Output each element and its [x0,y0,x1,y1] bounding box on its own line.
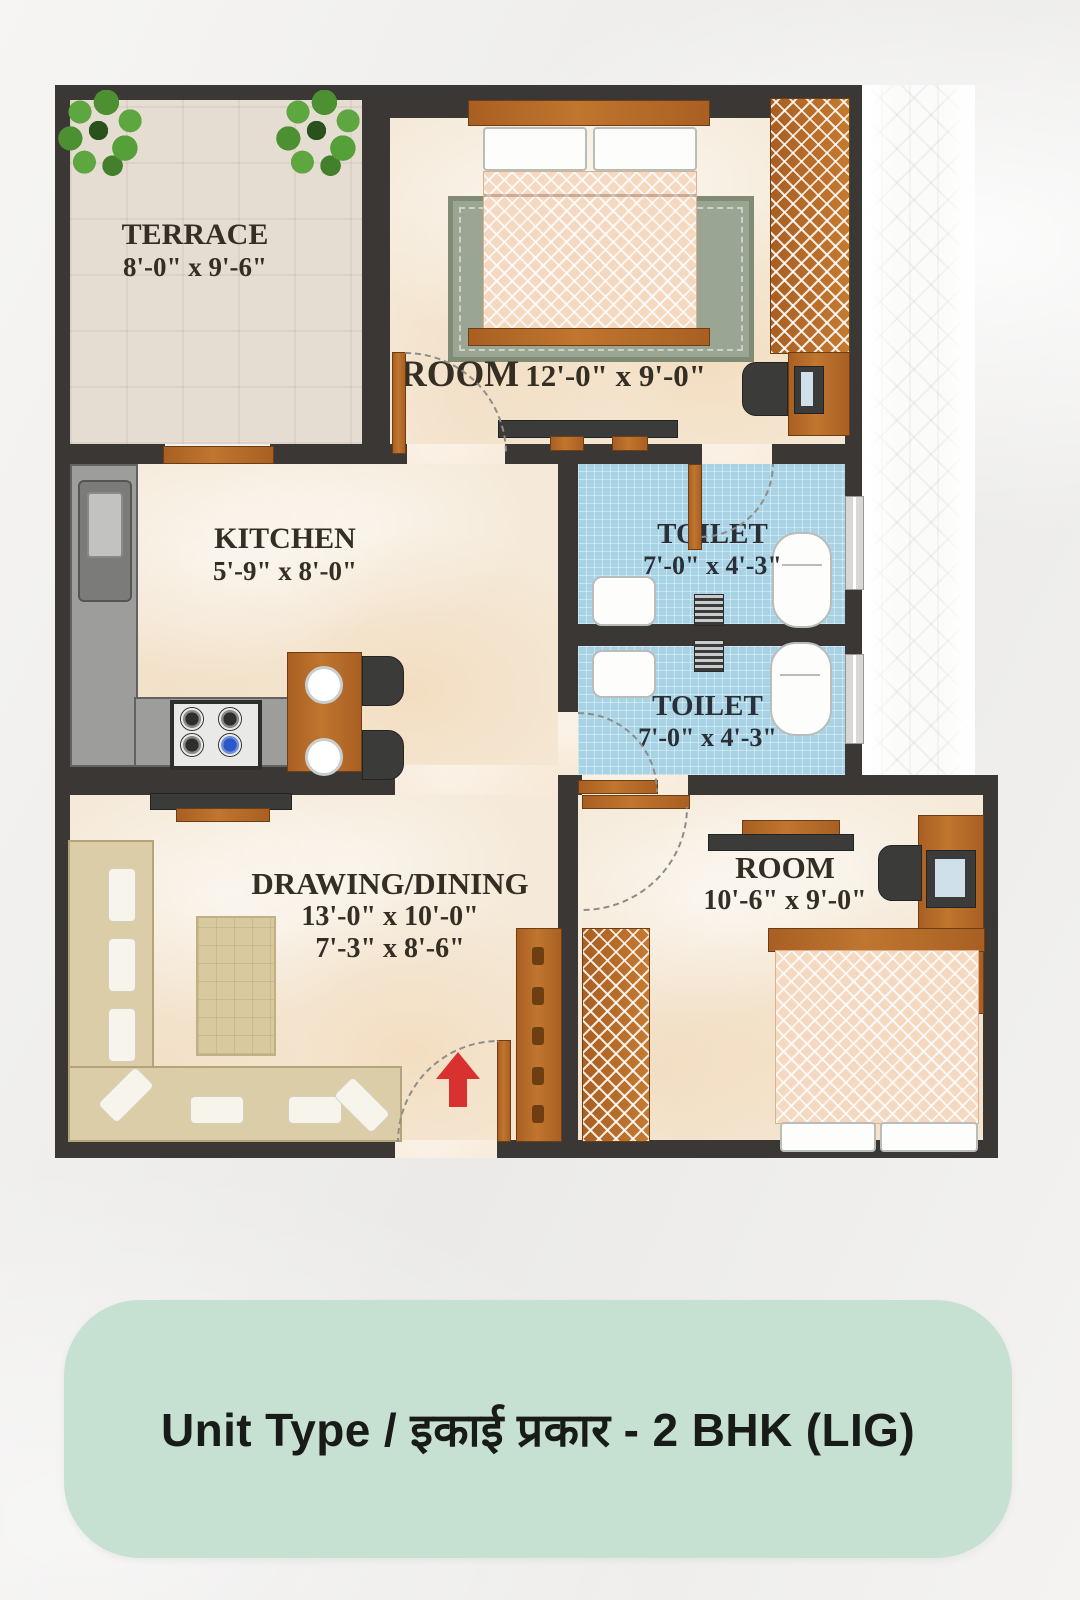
desk-chair [742,362,788,416]
sofa-cushion [108,868,136,922]
room-dims: 8'-0" x 9'-6" [85,252,305,283]
unit-type-text: Unit Type / इकाई प्रकार - 2 BHK (LIG) [161,1398,915,1460]
plate-icon [305,738,343,776]
room-dims: 13'-0" x 10'-0" [235,901,545,933]
drawer-handle [532,987,544,1005]
drawer-unit [516,928,562,1142]
drawer-handle [532,1067,544,1085]
wall-terrace-room1 [362,100,390,464]
kitchen-sink [78,480,132,602]
burner-icon [218,707,242,731]
door-leaf-room1 [392,352,406,454]
tv [498,420,678,438]
monitor-screen [935,859,965,897]
tv-stand [612,436,648,451]
pillow [880,1122,978,1152]
shower-icon [694,594,724,626]
room-dims: 5'-9" x 8'-0" [170,556,400,587]
washbasin [592,576,656,626]
computer-monitor [926,850,976,908]
pillow [780,1122,876,1152]
bed-headboard [768,928,985,952]
drawer-handle [532,947,544,965]
dining-chair [362,730,404,780]
burner-icon [180,733,204,757]
drawer-handle [532,1105,544,1123]
room-dims: 10'-6" x 9'-0" [665,885,905,917]
pillow [593,127,697,171]
kitchen-label: KITCHEN 5'-9" x 8'-0" [170,522,400,587]
door-opening-entrance [395,1140,497,1158]
room-dims: 7'-0" x 4'-3" [590,551,835,581]
dining-chair [362,656,404,706]
tv-stand [550,436,584,451]
sofa-cushion [190,1096,244,1124]
unit-type-banner: Unit Type / इकाई प्रकार - 2 BHK (LIG) [64,1300,1012,1558]
computer-monitor [794,366,824,414]
terrace-label: TERRACE 8'-0" x 9'-6" [85,218,305,283]
window-toilet2 [845,654,864,744]
pillow [483,127,587,171]
burner-flame-icon [218,733,242,757]
door-leaf-entrance [497,1040,511,1142]
bed-blanket [775,950,979,1124]
wall-room1-bottom-b [505,444,702,464]
bed-headboard [468,100,710,126]
door-opening-toilet2 [558,712,578,775]
room-name: TERRACE [85,218,305,252]
wall-toilets-left [558,444,578,712]
room-name: TOILET [585,690,830,723]
window-toilet1 [845,496,864,590]
wall-room1-bottom-c [772,444,845,464]
wall-kitchen-top-left [55,444,165,464]
sofa-cushion [108,1008,136,1062]
room-name: KITCHEN [170,522,400,556]
drawer-handle [532,1027,544,1045]
sofa-cushion [288,1096,342,1124]
wall-room2-top-b [688,775,998,795]
wardrobe [582,928,650,1142]
page: { "page_background": "#f1f0ee", "caption… [0,0,1080,1600]
room-name: DRAWING/DINING [235,866,545,901]
room-dims-2: 7'-3" x 8'-6" [235,933,545,965]
tv [708,834,854,851]
wc-seat-line [780,674,820,676]
room-name: ROOM [665,850,905,885]
blanket-fold [484,194,696,197]
monitor-screen [801,372,813,406]
door-opening-toilet1 [702,444,772,464]
shower-icon [694,640,724,672]
room2-label: ROOM 10'-6" x 9'-0" [665,850,905,917]
terrace-window-sill [163,446,274,464]
wardrobe [770,98,850,354]
room-dims: 12'-0" x 9'-0" [525,358,706,393]
sofa-cushion [108,938,136,992]
drawing-dining-label: DRAWING/DINING 13'-0" x 10'-0" 7'-3" x 8… [235,866,545,965]
wall-bottom-left [55,1140,395,1158]
plant-icon [58,90,146,178]
bed-footboard [468,328,710,346]
gas-stove [170,700,262,770]
wall-room2-right [983,795,998,1158]
plant-icon [276,90,364,178]
bed-blanket [483,171,697,333]
tv-stand [176,808,270,822]
wall-kitchen-top-right [270,444,365,464]
floor-corridor [395,765,558,795]
sink-basin [87,492,123,558]
plate-icon [305,666,343,704]
burner-icon [180,707,204,731]
